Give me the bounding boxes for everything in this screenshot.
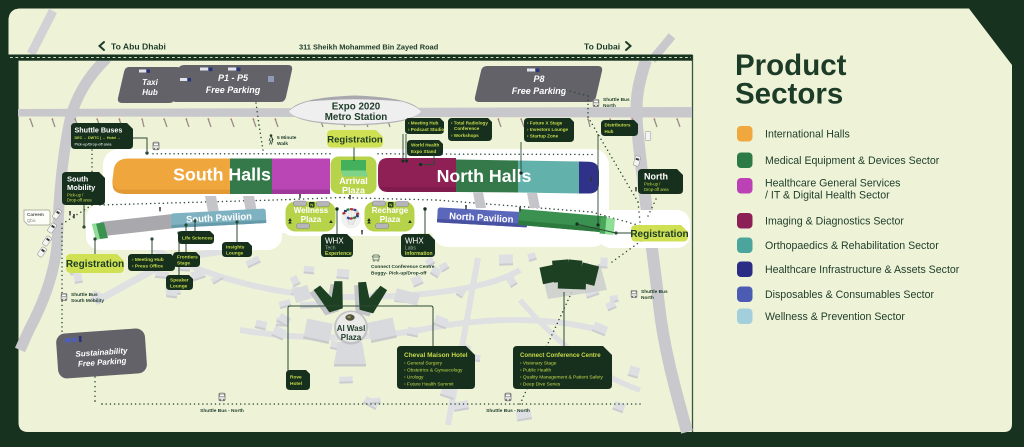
svg-text:Conference: Conference [454,126,480,131]
svg-text:Metro Station: Metro Station [325,112,388,123]
svg-text:Medical Equipment & Devices Se: Medical Equipment & Devices Sector [765,155,940,167]
svg-text:Frontiers: Frontiers [177,255,198,261]
svg-text:› Future X Stage: › Future X Stage [527,121,563,126]
svg-text:Pick-up /: Pick-up / [644,182,661,187]
svg-text:Imaging & Diagnostics Sector: Imaging & Diagnostics Sector [765,216,904,228]
svg-text:Shuttle Bus - North: Shuttle Bus - North [200,408,244,414]
svg-text:Orthopaedics & Rehabilitation: Orthopaedics & Rehabilitation Sector [765,240,939,252]
svg-text:› Quality Management & Patient: › Quality Management & Patient Safety [520,375,604,381]
svg-text:5 Minute: 5 Minute [277,135,297,141]
svg-text:Drop-off area: Drop-off area [67,198,92,203]
svg-text:Healthcare General Services: Healthcare General Services [765,178,900,190]
svg-text:Shuttle Bus: Shuttle Bus [71,292,98,298]
svg-text:Connect Conference Centre: Connect Conference Centre [520,352,601,359]
svg-text:South Halls: South Halls [173,165,271,185]
svg-text:Cheval Maison Hotel: Cheval Maison Hotel [404,352,468,359]
svg-text:International Halls: International Halls [765,129,850,141]
svg-text:Careem: Careem [27,212,44,217]
svg-text:Shuttle Bus - North: Shuttle Bus - North [486,408,530,414]
svg-text:› Meeting Hub: › Meeting Hub [408,121,439,126]
svg-text:Wellness: Wellness [294,206,329,215]
svg-text:Hotel: Hotel [290,381,302,387]
svg-text:Walk: Walk [277,141,288,147]
svg-text:Arrival: Arrival [339,176,368,186]
svg-text:› Urology: › Urology [404,375,424,381]
svg-text:Shuttle Bus: Shuttle Bus [603,97,630,103]
svg-text:Healthcare Infrastructure & As: Healthcare Infrastructure & Assets Secto… [765,264,960,276]
svg-text:Experience: Experience [325,251,352,257]
svg-text:Expo Stand: Expo Stand [411,149,436,154]
svg-text:Registration: Registration [66,259,124,270]
svg-text:Plaza: Plaza [301,215,322,224]
svg-text:Distributors: Distributors [605,123,631,128]
svg-text:Drop-off area: Drop-off area [644,187,669,192]
svg-text:Stage: Stage [177,261,190,267]
svg-text:South Mobility: South Mobility [71,298,104,304]
svg-text:Lounge: Lounge [170,284,188,290]
svg-text:› Obstetrics & Gynaecology: › Obstetrics & Gynaecology [404,368,463,374]
svg-text:› Press Office: › Press Office [132,264,163,270]
svg-text:› Public Health: › Public Health [520,368,552,374]
svg-text:Connect Conference Centre: Connect Conference Centre [371,264,435,270]
svg-text:311 Sheikh Mohammed Bin Zayed: 311 Sheikh Mohammed Bin Zayed Road [299,43,439,52]
svg-text:Speaker: Speaker [170,278,189,284]
svg-text:› Podcast Studio: › Podcast Studio [408,127,444,132]
svg-text:To Abu Dhabi: To Abu Dhabi [111,42,166,52]
svg-text:Sectors: Sectors [735,78,843,111]
svg-text:Buggy- Pick-up/Drop-off: Buggy- Pick-up/Drop-off [371,271,427,277]
svg-text:North: North [641,295,654,301]
svg-text:Registration: Registration [630,229,688,240]
svg-text:Shuttle Bus: Shuttle Bus [641,289,668,295]
svg-text:Taxi: Taxi [142,78,158,87]
svg-text:Hub: Hub [605,129,614,134]
svg-text:Al Wasl: Al Wasl [337,324,366,333]
svg-text:Rove: Rove [290,375,302,381]
svg-text:WHX: WHX [405,237,424,246]
svg-text:› Startup Zone: › Startup Zone [527,134,559,139]
svg-text:Plaza: Plaza [380,215,401,224]
svg-text:North: North [603,103,616,109]
svg-text:P8: P8 [533,74,544,84]
svg-text:› Investors Lounge: › Investors Lounge [527,127,569,132]
svg-text:Plaza: Plaza [341,333,362,342]
svg-text:Plaza: Plaza [342,186,366,196]
svg-text:› Meeting Hub: › Meeting Hub [132,257,164,263]
svg-text:Free Parking: Free Parking [512,86,567,96]
svg-text:› General Surgery: › General Surgery [404,361,443,367]
svg-text:Disposables & Consumables Sect: Disposables & Consumables Sector [765,289,934,301]
svg-text:› Total Radiology: › Total Radiology [451,121,488,126]
svg-text:Recharge: Recharge [372,206,409,215]
svg-text:Insights: Insights [226,245,245,251]
svg-text:Hub: Hub [142,88,158,97]
svg-text:Information: Information [405,251,433,257]
svg-text:Wellness & Prevention Sector: Wellness & Prevention Sector [765,311,905,323]
svg-text:World Health: World Health [411,143,439,148]
svg-text:DEC ↔ DWTC | ↔ Hotel ↔: DEC ↔ DWTC | ↔ Hotel ↔ [75,136,121,140]
svg-text:WHX: WHX [325,237,344,246]
svg-text:› Visionary Stage: › Visionary Stage [520,361,557,367]
svg-text:Life Sciences: Life Sciences [182,236,213,242]
svg-text:Expo 2020: Expo 2020 [332,102,381,113]
svg-text:Qbix: Qbix [27,218,37,223]
svg-text:› Deep Dive Series: › Deep Dive Series [520,382,561,388]
svg-text:P1 - P5: P1 - P5 [218,73,249,83]
svg-text:Free Parking: Free Parking [206,85,261,95]
svg-text:› Workshops: › Workshops [451,133,479,138]
svg-text:To Dubai: To Dubai [584,42,620,52]
svg-text:Mobility: Mobility [67,183,96,192]
svg-text:Registration: Registration [327,134,383,145]
svg-text:Shuttle Buses: Shuttle Buses [75,126,123,135]
svg-text:Pick-up/Drop-off area: Pick-up/Drop-off area [75,142,113,147]
svg-text:Lounge: Lounge [226,251,244,257]
svg-text:North: North [644,172,668,182]
svg-text:› Future Health Summit: › Future Health Summit [404,382,454,388]
svg-text:/ IT & Digital Health Sector: / IT & Digital Health Sector [765,190,890,202]
svg-text:North Halls: North Halls [437,166,532,186]
